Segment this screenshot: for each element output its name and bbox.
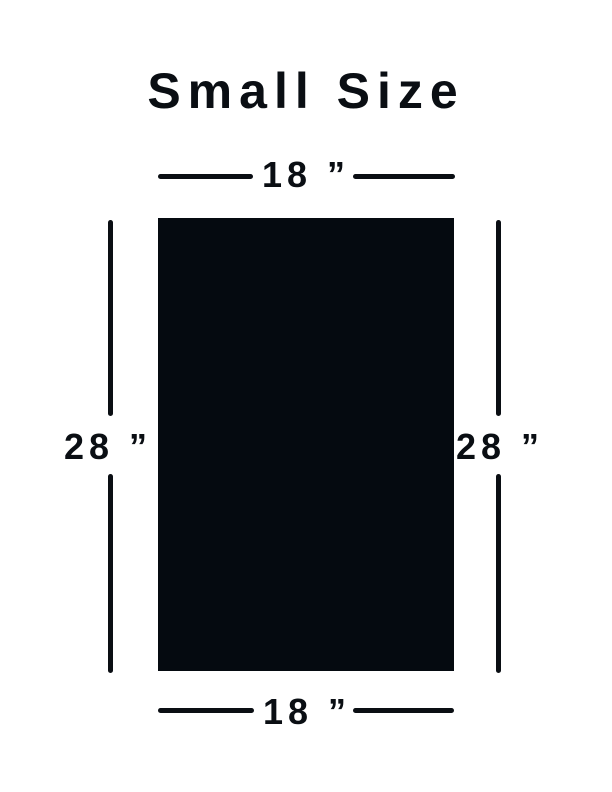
bottom-dimension-line-left: [158, 708, 254, 713]
left-dimension-line-lower: [108, 474, 113, 673]
right-dimension-label: 28 ”: [445, 429, 555, 465]
bottom-dimension-line-right: [353, 708, 454, 713]
left-dimension-label: 28 ”: [53, 429, 163, 465]
bottom-dimension-label: 18 ”: [252, 694, 362, 730]
product-rectangle: [158, 218, 454, 671]
page-title: Small Size: [0, 66, 612, 116]
top-dimension-label: 18 ”: [251, 157, 361, 193]
right-dimension-line-lower: [496, 474, 501, 673]
top-dimension-line-left: [158, 174, 253, 179]
top-dimension-line-right: [353, 174, 455, 179]
size-diagram-page: Small Size 18 ” 28 ” 28 ” 18 ”: [0, 0, 612, 792]
right-dimension-line-upper: [496, 220, 501, 416]
left-dimension-line-upper: [108, 220, 113, 416]
